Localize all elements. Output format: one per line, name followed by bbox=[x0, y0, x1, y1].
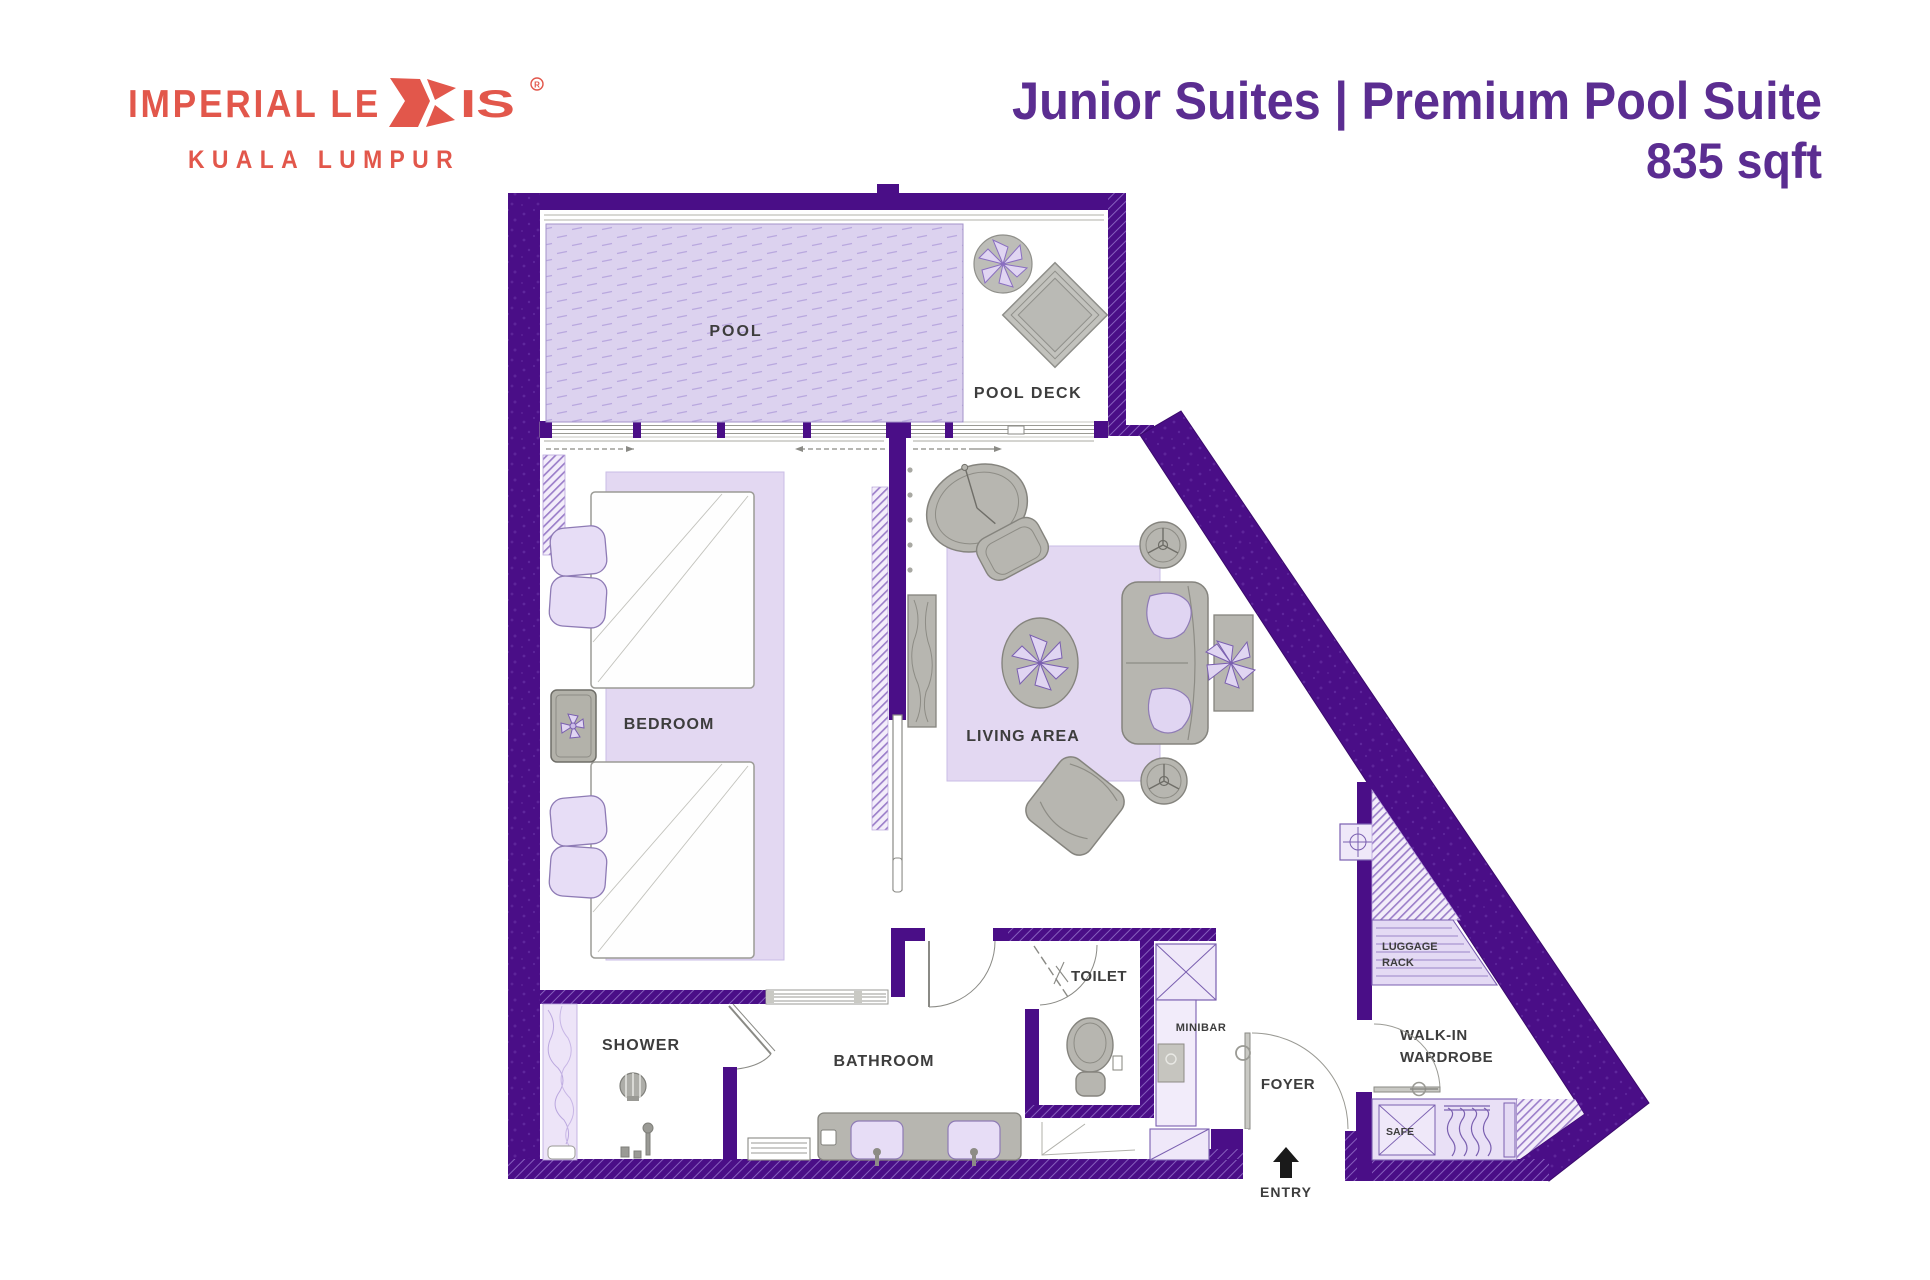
svg-text:Junior Suites | Premium Pool S: Junior Suites | Premium Pool Suite bbox=[1012, 72, 1822, 132]
svg-text:SAFE: SAFE bbox=[1386, 1126, 1414, 1138]
svg-text:LUGGAGE: LUGGAGE bbox=[1382, 941, 1438, 953]
svg-text:BATHROOM: BATHROOM bbox=[833, 1053, 934, 1070]
svg-text:TOILET: TOILET bbox=[1071, 968, 1127, 985]
svg-text:BEDROOM: BEDROOM bbox=[624, 716, 715, 733]
svg-text:SHOWER: SHOWER bbox=[602, 1037, 680, 1054]
svg-text:LIVING AREA: LIVING AREA bbox=[966, 728, 1080, 745]
svg-text:IS: IS bbox=[460, 83, 515, 126]
svg-text:R: R bbox=[534, 81, 540, 90]
svg-text:MINIBAR: MINIBAR bbox=[1176, 1022, 1227, 1034]
svg-text:WARDROBE: WARDROBE bbox=[1400, 1049, 1493, 1066]
svg-text:FOYER: FOYER bbox=[1261, 1076, 1315, 1093]
svg-text:WALK-IN: WALK-IN bbox=[1400, 1027, 1468, 1044]
svg-text:835 sqft: 835 sqft bbox=[1646, 133, 1822, 189]
svg-text:ENTRY: ENTRY bbox=[1260, 1184, 1312, 1200]
svg-text:RACK: RACK bbox=[1382, 957, 1414, 969]
svg-text:POOL DECK: POOL DECK bbox=[974, 385, 1082, 402]
svg-text:IMPERIAL LE: IMPERIAL LE bbox=[128, 83, 381, 126]
svg-text:POOL: POOL bbox=[709, 323, 762, 340]
svg-text:KUALA LUMPUR: KUALA LUMPUR bbox=[188, 146, 460, 174]
